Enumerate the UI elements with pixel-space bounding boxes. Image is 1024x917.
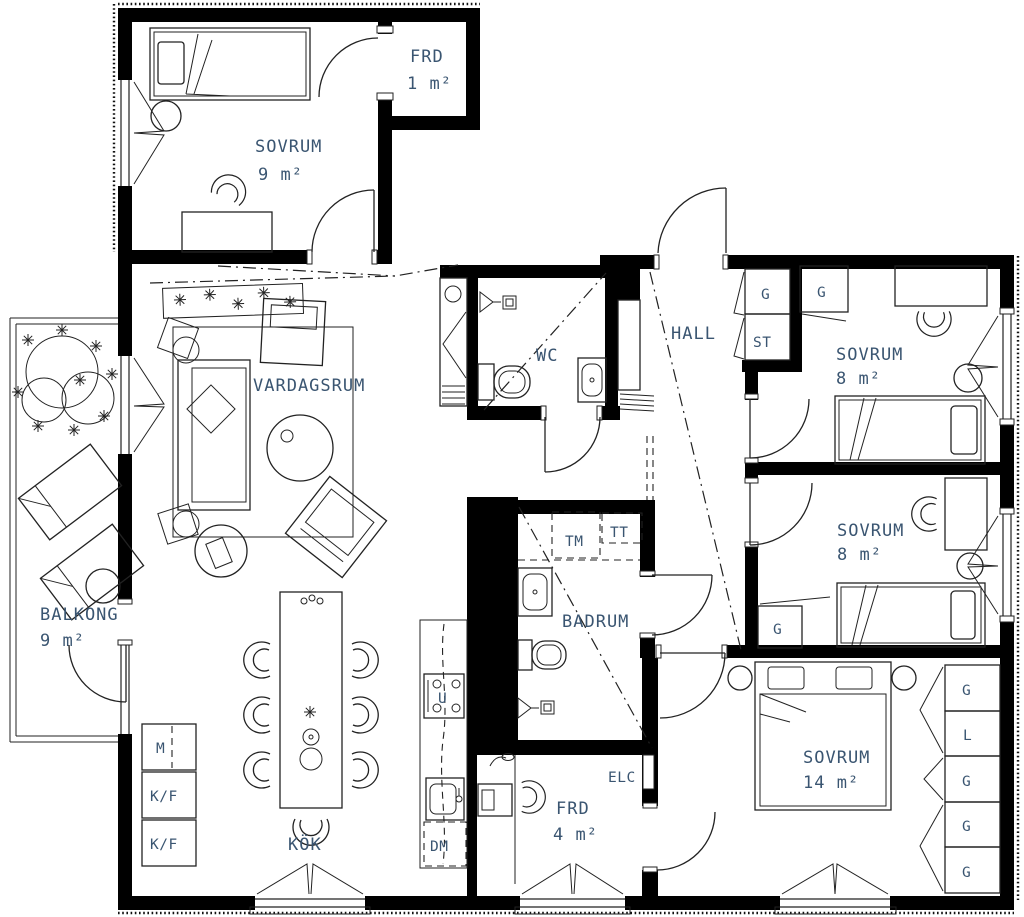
- side-table: [151, 101, 181, 131]
- nightstand: [954, 364, 982, 392]
- kitchen-counter: [420, 620, 467, 868]
- room-label-balkong: BALKONG: [40, 605, 119, 625]
- closet-label-st: ST: [753, 335, 771, 351]
- microwave-cabinet: M: [142, 724, 196, 770]
- window-kok: [250, 864, 370, 914]
- room-area-frd4: 4 m²: [553, 825, 598, 845]
- appliance-label-elc: ELC: [608, 770, 636, 786]
- room-label-frd4: FRD: [556, 799, 590, 819]
- room-label-hall: HALL: [671, 324, 716, 344]
- fridge-freezer: K/F: [142, 820, 196, 866]
- floor-drain-icon: [480, 292, 516, 312]
- windows: [121, 80, 1014, 914]
- bed: [150, 28, 310, 100]
- closet-label-g: G: [817, 285, 826, 301]
- room-frd-4: ELC FRD 4 m²: [478, 754, 654, 885]
- nightstand: [957, 553, 983, 579]
- room-sovrum-8-top: G SOVRUM 8 m²: [800, 266, 987, 464]
- closet-label: L: [963, 728, 972, 744]
- door-sovrum8-top: [745, 394, 809, 463]
- room-sovrum-14: G L G G G SOVRUM 14 m²: [728, 662, 1000, 893]
- appliance-label-tt: TT: [610, 525, 628, 541]
- room-area-sovrum14: 14 m²: [803, 773, 859, 793]
- armchair: [285, 476, 386, 577]
- door-entry: [654, 188, 728, 269]
- desk-chair: [522, 781, 546, 813]
- balcony-glass: [121, 644, 129, 734]
- appliance-label-oven: U: [438, 691, 447, 707]
- window-vardagsrum: [121, 356, 164, 454]
- room-sovrum-9: SOVRUM 9 m²: [150, 28, 322, 252]
- tall-cabinet: [440, 278, 467, 406]
- desk-chair: [912, 497, 937, 531]
- elc-cabinet: ELC: [608, 755, 654, 789]
- desk: [182, 212, 272, 252]
- door-badrum: [640, 571, 712, 638]
- appliance-label-kf2: K/F: [150, 837, 178, 853]
- tv-bench: [260, 298, 325, 365]
- closet-label-g: G: [773, 622, 782, 638]
- desk-chair: [210, 169, 252, 206]
- room-label-sovrum8-mid: SOVRUM: [837, 521, 904, 541]
- room-label-vardagsrum: VARDAGSRUM: [253, 376, 365, 396]
- room-badrum: TM TT BADRUM: [518, 512, 642, 718]
- room-area-sovrum8-mid: 8 m²: [837, 545, 882, 565]
- wardrobe-g: G: [758, 597, 830, 648]
- toilet: [518, 640, 566, 670]
- room-wc: WC: [478, 292, 606, 402]
- nightstand: [892, 666, 916, 690]
- room-label-sovrum9: SOVRUM: [255, 137, 322, 157]
- desk: [895, 266, 987, 306]
- rug: [173, 327, 353, 537]
- room-label-sovrum8-top: SOVRUM: [836, 345, 903, 365]
- room-sovrum-8-mid: G SOVRUM 8 m²: [758, 478, 987, 648]
- stove: U: [424, 674, 464, 718]
- hall-closet: G ST: [734, 269, 790, 360]
- appliance-label-kf1: K/F: [150, 789, 178, 805]
- wardrobe-g: G: [800, 266, 848, 321]
- floor-plan: BALKONG 9 m² SOVRUM 9 m² FRD 1 m²: [0, 0, 1024, 917]
- door-sovrum14: [656, 645, 727, 718]
- sink: [578, 358, 606, 402]
- door-frd1: [319, 26, 393, 100]
- toilet: [478, 364, 530, 400]
- room-label-wc: WC: [536, 346, 558, 366]
- appliance-label-tm: TM: [565, 534, 583, 550]
- door-sovrum8-mid: [745, 478, 812, 547]
- appliance-label-dm: DM: [430, 839, 448, 855]
- room-label-badrum: BADRUM: [562, 612, 629, 632]
- closet-label: G: [962, 819, 971, 835]
- desk-chair: [917, 311, 951, 336]
- appliance-label-m: M: [156, 741, 165, 757]
- door-sovrum9: [307, 190, 377, 264]
- balcony-railing: [10, 318, 118, 742]
- fridge-freezer: K/F: [142, 772, 196, 818]
- closet-label: G: [962, 774, 971, 790]
- room-frd-1: FRD 1 m²: [407, 47, 452, 94]
- room-area-sovrum8-top: 8 m²: [836, 369, 881, 389]
- room-vardagsrum: VARDAGSRUM: [157, 278, 467, 578]
- bed: [835, 396, 985, 464]
- room-area-balkong: 9 m²: [40, 631, 85, 651]
- floor-plan-drawing: BALKONG 9 m² SOVRUM 9 m² FRD 1 m²: [0, 0, 1024, 917]
- dining-table: [280, 592, 342, 808]
- room-label-kok: KÖK: [288, 833, 322, 855]
- dishwasher: DM: [424, 822, 466, 866]
- room-label-frd1: FRD: [410, 47, 444, 67]
- hall-cabinet: [618, 300, 654, 411]
- room-label-sovrum14: SOVRUM: [803, 748, 870, 768]
- side-table-books: [195, 525, 247, 577]
- walls: [118, 8, 1014, 910]
- door-wc: [541, 406, 602, 472]
- master-wardrobe: G L G G G: [920, 665, 1000, 893]
- room-area-frd1: 1 m²: [407, 74, 452, 94]
- nightstand: [728, 666, 752, 690]
- doors: [69, 26, 812, 872]
- bed: [837, 583, 985, 647]
- door-frd4: [643, 803, 715, 872]
- sink: [518, 568, 552, 616]
- dryer: TT: [602, 513, 642, 543]
- washing-machine: TM: [552, 512, 600, 558]
- table-decor: [300, 595, 323, 770]
- room-area-sovrum9: 9 m²: [258, 165, 303, 185]
- sofa: [157, 317, 250, 544]
- coffee-table: [267, 415, 333, 481]
- lounge-chair: [18, 444, 121, 540]
- window-frd4: [515, 864, 630, 914]
- desk: [945, 478, 987, 550]
- tree: [12, 324, 118, 436]
- balcony-table: [86, 569, 120, 603]
- closet-label: G: [962, 865, 971, 881]
- small-desk: [478, 754, 514, 817]
- closet-label-g: G: [761, 287, 770, 303]
- plant-box: [163, 283, 304, 318]
- dining-chairs: [244, 642, 378, 845]
- room-kok: U DM M K/F K/F KÖK: [142, 592, 467, 868]
- kitchen-sink: [426, 778, 464, 820]
- closet-label: G: [962, 683, 971, 699]
- floor-drain-icon: [518, 698, 554, 718]
- window-sovrum14: [775, 864, 896, 914]
